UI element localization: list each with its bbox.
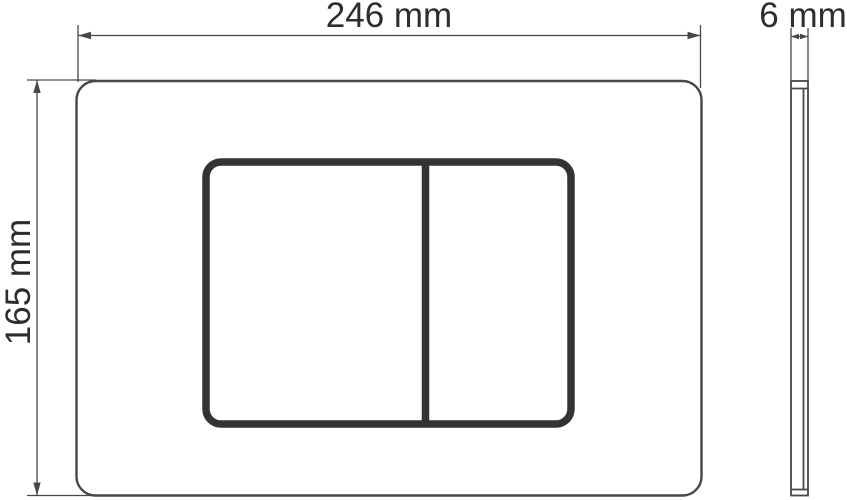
height-arrow-top-icon	[33, 80, 40, 93]
width-dimension: 246 mm	[78, 0, 701, 88]
height-dimension: 165 mm	[0, 80, 100, 496]
side-view	[791, 81, 808, 496]
height-arrow-bottom-icon	[33, 483, 40, 496]
depth-dimension: 6 mm	[759, 0, 847, 80]
width-dimension-label: 246 mm	[326, 0, 452, 35]
width-arrow-left-icon	[78, 32, 91, 39]
height-dimension-label: 165 mm	[0, 219, 38, 345]
front-view	[77, 81, 702, 496]
width-arrow-right-icon	[688, 32, 701, 39]
drawing-canvas: 246 mm 165 mm 6 mm	[0, 0, 847, 500]
flush-buttons-outline	[206, 162, 571, 424]
plate-outline	[77, 81, 702, 496]
depth-dimension-label: 6 mm	[759, 0, 847, 35]
dimension-drawing-svg: 246 mm 165 mm 6 mm	[0, 0, 847, 500]
side-profile-outline	[791, 81, 808, 496]
